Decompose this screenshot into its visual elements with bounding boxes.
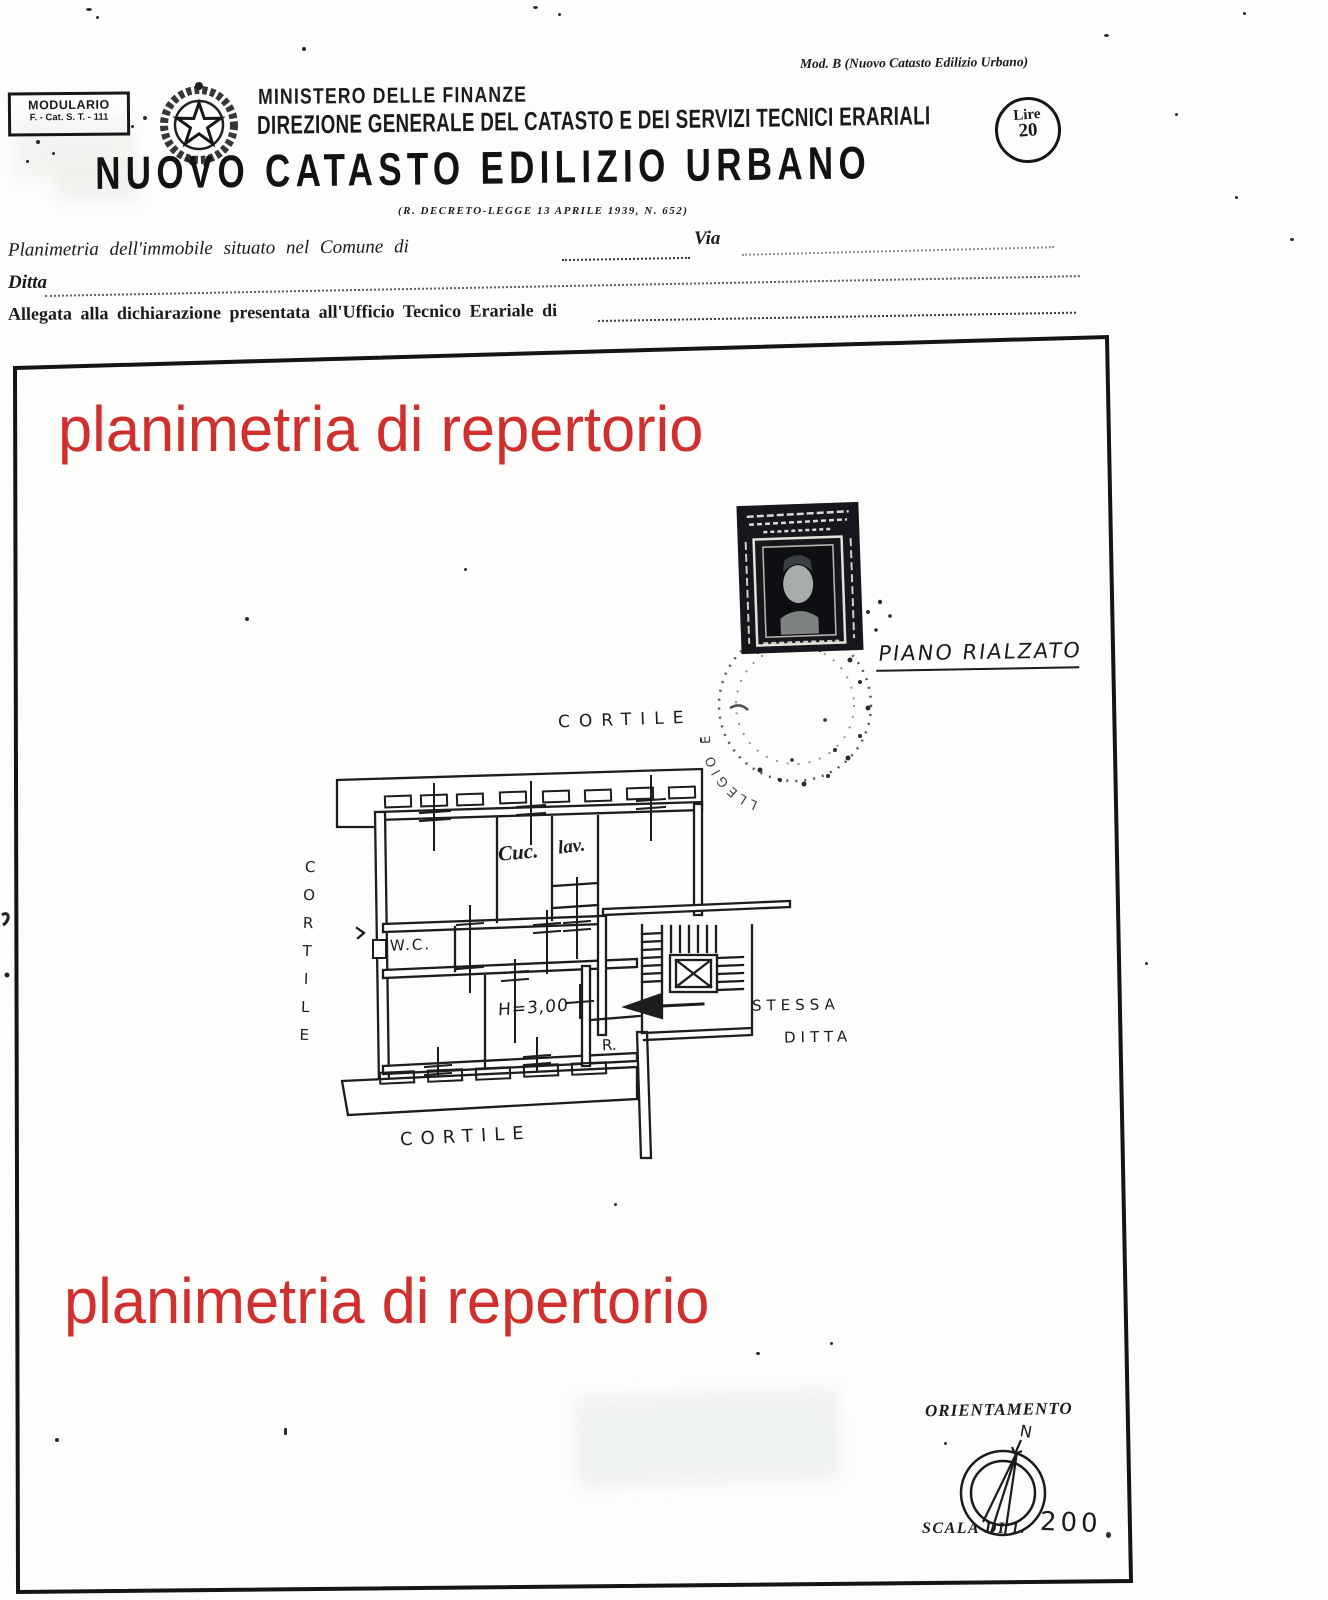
ink-speck (55, 1438, 59, 1442)
ink-speck (26, 160, 29, 163)
watermark-bottom: planimetria di repertorio (64, 1264, 709, 1338)
ink-speck (143, 116, 147, 120)
room-label-kitchen: Cuc. (497, 838, 539, 866)
floor-plan-drawing (285, 700, 805, 1170)
ink-speck (131, 125, 134, 128)
ink-speck (614, 1203, 617, 1206)
ink-speck (1290, 238, 1294, 241)
orientation-label: ORIENTAMENTO (925, 1399, 1073, 1422)
adjacent-owner-line2: DITTA (784, 1027, 852, 1046)
ink-speck (1175, 113, 1178, 116)
adjacent-owner-line1: STESSA (752, 995, 840, 1015)
room-label-laundry: lav. (557, 834, 587, 859)
ink-speck (1243, 12, 1246, 15)
ink-speck (96, 16, 99, 19)
ink-speck (464, 568, 467, 571)
ink-speck (284, 1428, 287, 1435)
floor-label: PIANO RIALZATO (876, 638, 1083, 672)
ink-speck (756, 1352, 760, 1355)
watermark-top: planimetria di repertorio (58, 392, 703, 466)
ink-speck (52, 152, 55, 155)
ink-speck (302, 47, 306, 51)
scale-label: SCALA DI 1. (922, 1520, 1026, 1538)
ink-speck (86, 8, 92, 11)
ink-speck (944, 1442, 947, 1445)
room-label-r: R. (602, 1036, 617, 1055)
scanned-cadastral-document: { "colors": { "ink": "#1b1b1b", "red_ove… (0, 0, 1328, 1600)
room-label-wc: W.C. (390, 935, 432, 954)
ink-speck (1145, 962, 1148, 965)
ink-speck (245, 617, 249, 621)
ink-speck (1235, 196, 1238, 199)
ink-speck (36, 140, 40, 144)
ink-speck (1106, 1532, 1111, 1538)
ink-speck (1104, 34, 1109, 37)
ink-speck (830, 1342, 833, 1345)
ink-speck (558, 13, 561, 16)
ink-speck (533, 6, 538, 9)
revenue-stamp (732, 498, 867, 660)
scale-value: 200 (1039, 1507, 1102, 1539)
